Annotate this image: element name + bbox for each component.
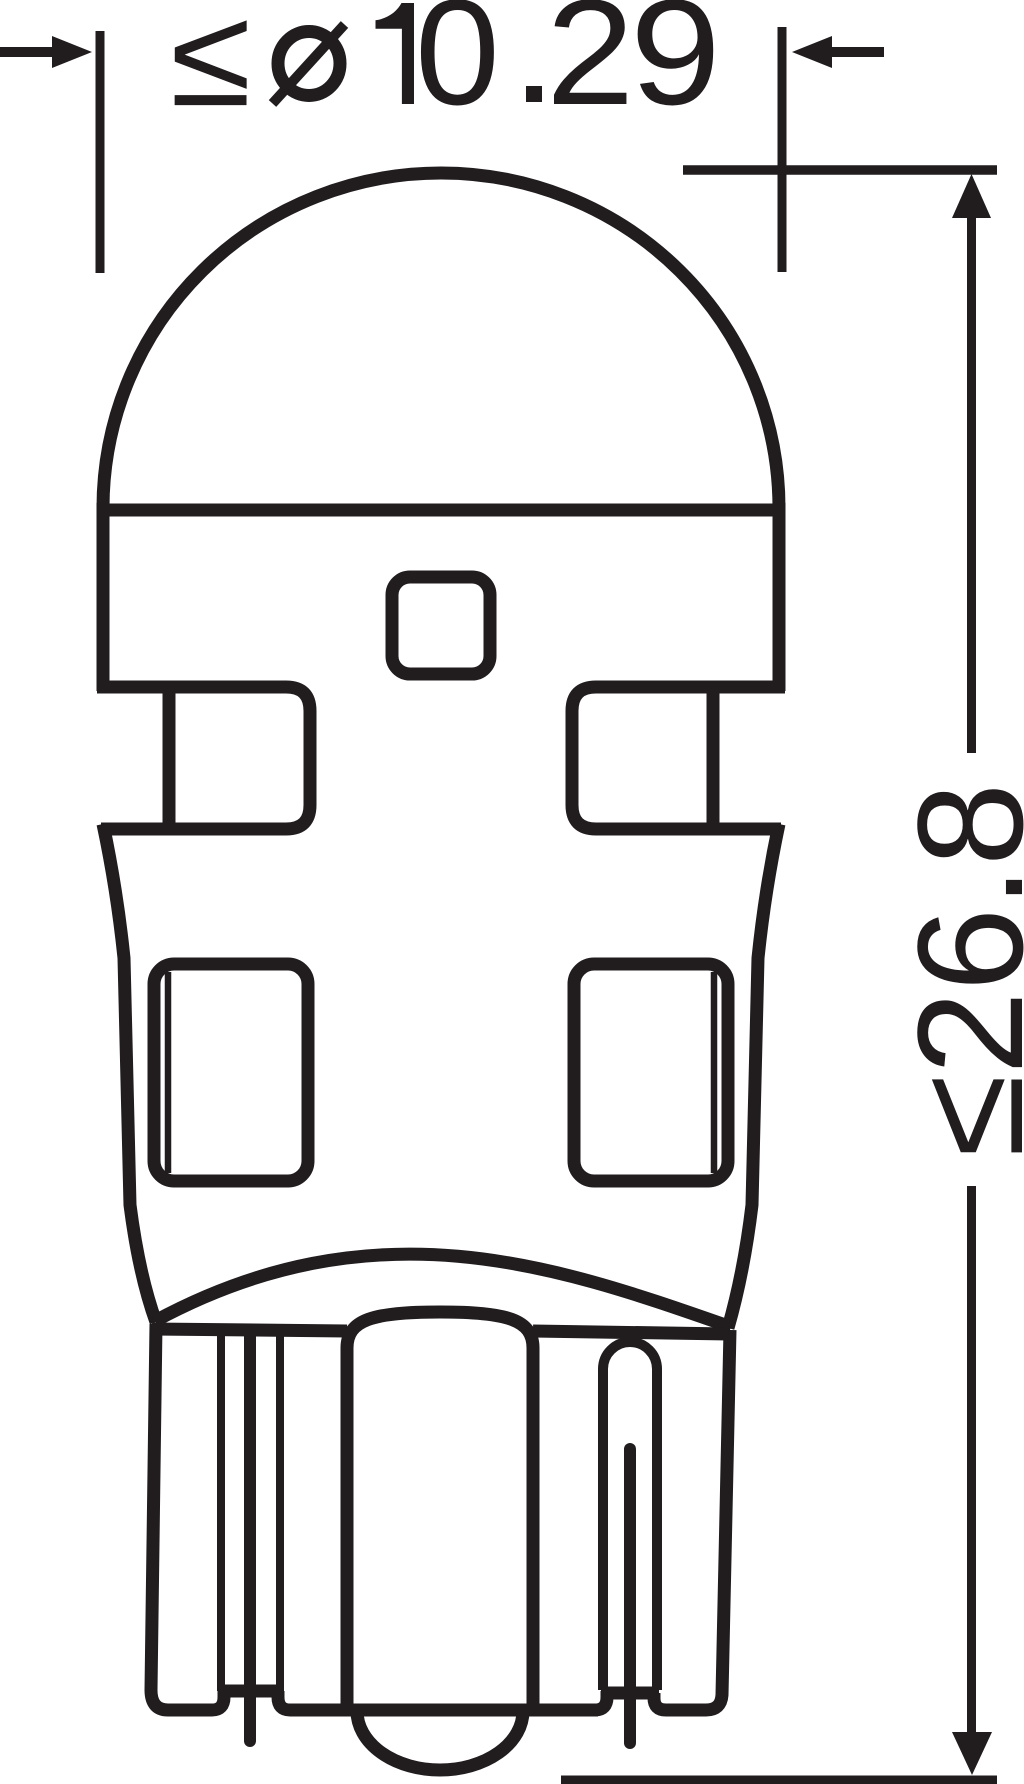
svg-text:2: 2 <box>546 0 634 136</box>
svg-text:≤: ≤ <box>170 0 251 135</box>
svg-text:9: 9 <box>630 0 721 137</box>
svg-text:0: 0 <box>415 0 500 137</box>
svg-text:≤26.8: ≤26.8 <box>886 783 1024 1157</box>
